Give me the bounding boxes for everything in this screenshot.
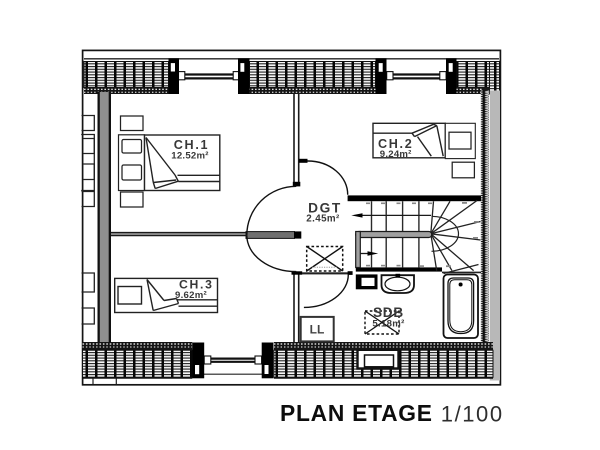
svg-text:LL: LL xyxy=(310,323,325,337)
svg-text:PLAN ETAGE: PLAN ETAGE xyxy=(280,400,433,426)
svg-text:2.45m²: 2.45m² xyxy=(306,214,340,225)
svg-text:9.24m²: 9.24m² xyxy=(380,149,412,160)
svg-text:5.18m²: 5.18m² xyxy=(372,319,404,330)
svg-text:12.52m²: 12.52m² xyxy=(171,151,208,162)
svg-text:9.62m²: 9.62m² xyxy=(175,290,207,301)
svg-text:1/100: 1/100 xyxy=(441,402,504,427)
